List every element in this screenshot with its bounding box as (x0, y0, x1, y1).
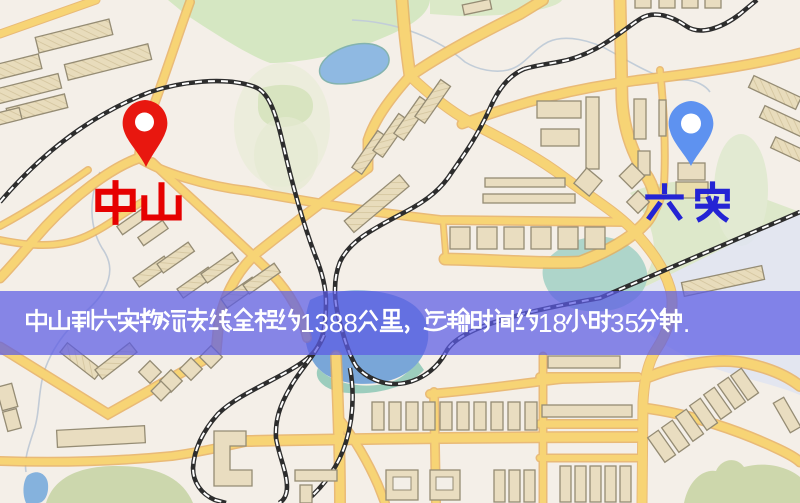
svg-text:35: 35 (610, 308, 639, 338)
svg-text:18: 18 (538, 308, 567, 338)
svg-text:.: . (683, 308, 690, 338)
svg-text:1388: 1388 (300, 308, 358, 338)
